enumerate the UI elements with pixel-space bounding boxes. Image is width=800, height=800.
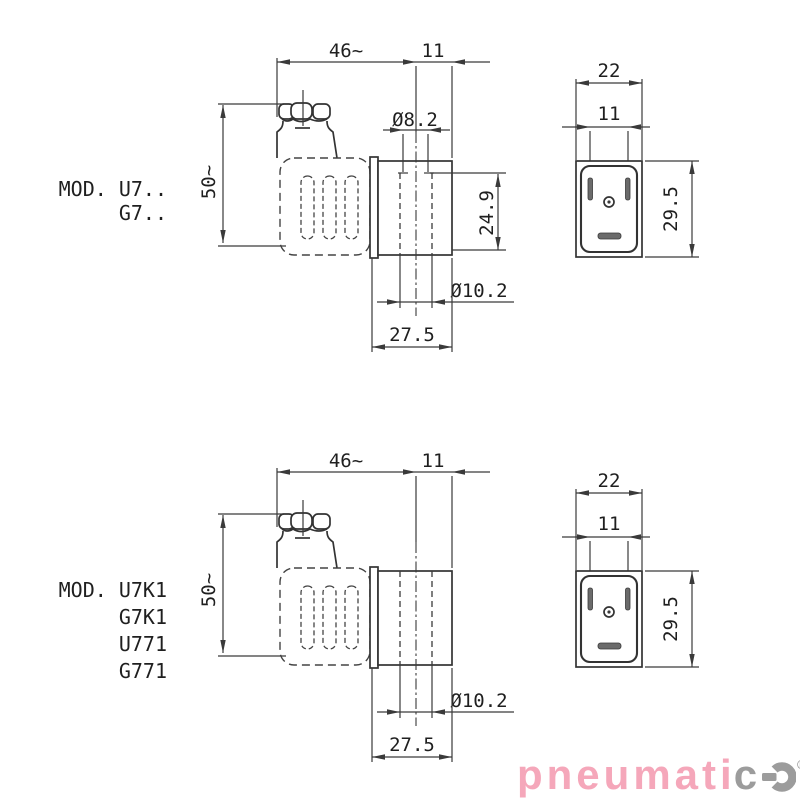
model-line-1: MOD. U7.. xyxy=(59,177,167,201)
connector-body xyxy=(576,161,642,257)
coil-body xyxy=(280,568,370,665)
dim-height-label: 29.5 xyxy=(660,596,682,642)
coil-slot xyxy=(345,176,358,239)
connector-slot xyxy=(598,233,621,239)
model-line-1: MOD. U7K1 xyxy=(59,578,167,602)
dim-11-label: 11 xyxy=(422,40,445,62)
dim-overall-length: 46~ 11 xyxy=(277,40,490,158)
connector-pin xyxy=(626,588,631,610)
connector-pin xyxy=(626,178,631,200)
dim-bore: Ø10.2 xyxy=(377,690,514,715)
model-label: MOD. U7K1 G7K1 U771 G771 xyxy=(59,578,167,683)
dim-pin-spacing-label: 11 xyxy=(598,513,621,535)
dim-22-label: 22 xyxy=(598,60,621,82)
connector-pin xyxy=(588,178,593,200)
connector-slot xyxy=(598,643,621,649)
dim-bore-label: Ø10.2 xyxy=(450,690,507,712)
dim-bore: Ø10.2 xyxy=(377,280,514,305)
dim-overall-height: 50~ xyxy=(198,514,286,656)
side-view: 46~ 11 50~ xyxy=(198,40,514,352)
drawing-svg: MOD. U7.. G7.. 46~ 11 xyxy=(0,0,800,800)
dim-overall-length: 46~ 11 xyxy=(277,450,490,568)
coil-slot xyxy=(323,586,336,649)
connector-body xyxy=(576,571,642,667)
coil-body xyxy=(280,158,370,255)
model-label: MOD. U7.. G7.. xyxy=(59,177,167,225)
model-line-2: G7.. xyxy=(119,201,167,225)
cable-gland xyxy=(277,90,337,158)
coil-slot xyxy=(345,586,358,649)
dim-46-label: 46~ xyxy=(329,40,363,62)
model-line-3: U771 xyxy=(119,632,167,656)
dim-22-label: 22 xyxy=(598,470,621,492)
dim-connector-height: 29.5 xyxy=(645,571,699,667)
model-line-2: G7K1 xyxy=(119,605,167,629)
brand-text-pink: pneumati xyxy=(517,752,736,798)
top-drawing: MOD. U7.. G7.. 46~ 11 xyxy=(59,40,699,352)
dim-width-label: 27.5 xyxy=(389,734,435,756)
dim-body-width: 27.5 xyxy=(372,668,452,762)
front-view: 22 11 xyxy=(562,60,699,257)
dim-overall-height: 50~ xyxy=(198,104,286,246)
coupling-o-icon xyxy=(762,761,796,793)
connector-pin xyxy=(588,588,593,610)
dim-46-label: 46~ xyxy=(329,450,363,472)
coil-slot xyxy=(301,586,314,649)
armature-tube xyxy=(370,542,452,726)
coil-slot xyxy=(301,176,314,239)
cable-gland xyxy=(277,500,337,568)
dim-connector-height: 29.5 xyxy=(645,161,699,257)
technical-drawing-sheet: MOD. U7.. G7.. 46~ 11 xyxy=(0,0,800,800)
armature-tube xyxy=(370,132,452,316)
dim-bore-label: Ø10.2 xyxy=(450,280,507,302)
dim-50-label: 50~ xyxy=(198,573,220,607)
front-view: 22 11 xyxy=(562,470,699,667)
coil-slot xyxy=(323,176,336,239)
dim-depth-label: 24.9 xyxy=(476,190,498,236)
dim-11-label: 11 xyxy=(422,450,445,472)
dim-width-label: 27.5 xyxy=(389,324,435,346)
brand-text-gray: c xyxy=(734,752,761,798)
dim-body-width: 27.5 xyxy=(372,258,452,352)
dim-pin-spacing-label: 11 xyxy=(598,103,621,125)
dim-hole-small-label: Ø8.2 xyxy=(392,109,438,131)
side-view: 46~ 11 50~ xyxy=(198,450,514,762)
dim-50-label: 50~ xyxy=(198,165,220,199)
bottom-drawing: MOD. U7K1 G7K1 U771 G771 46~ 11 xyxy=(59,450,699,762)
brand-logo: pneumatic ® xyxy=(517,752,800,798)
dim-height-label: 29.5 xyxy=(660,186,682,232)
model-line-4: G771 xyxy=(119,659,167,683)
